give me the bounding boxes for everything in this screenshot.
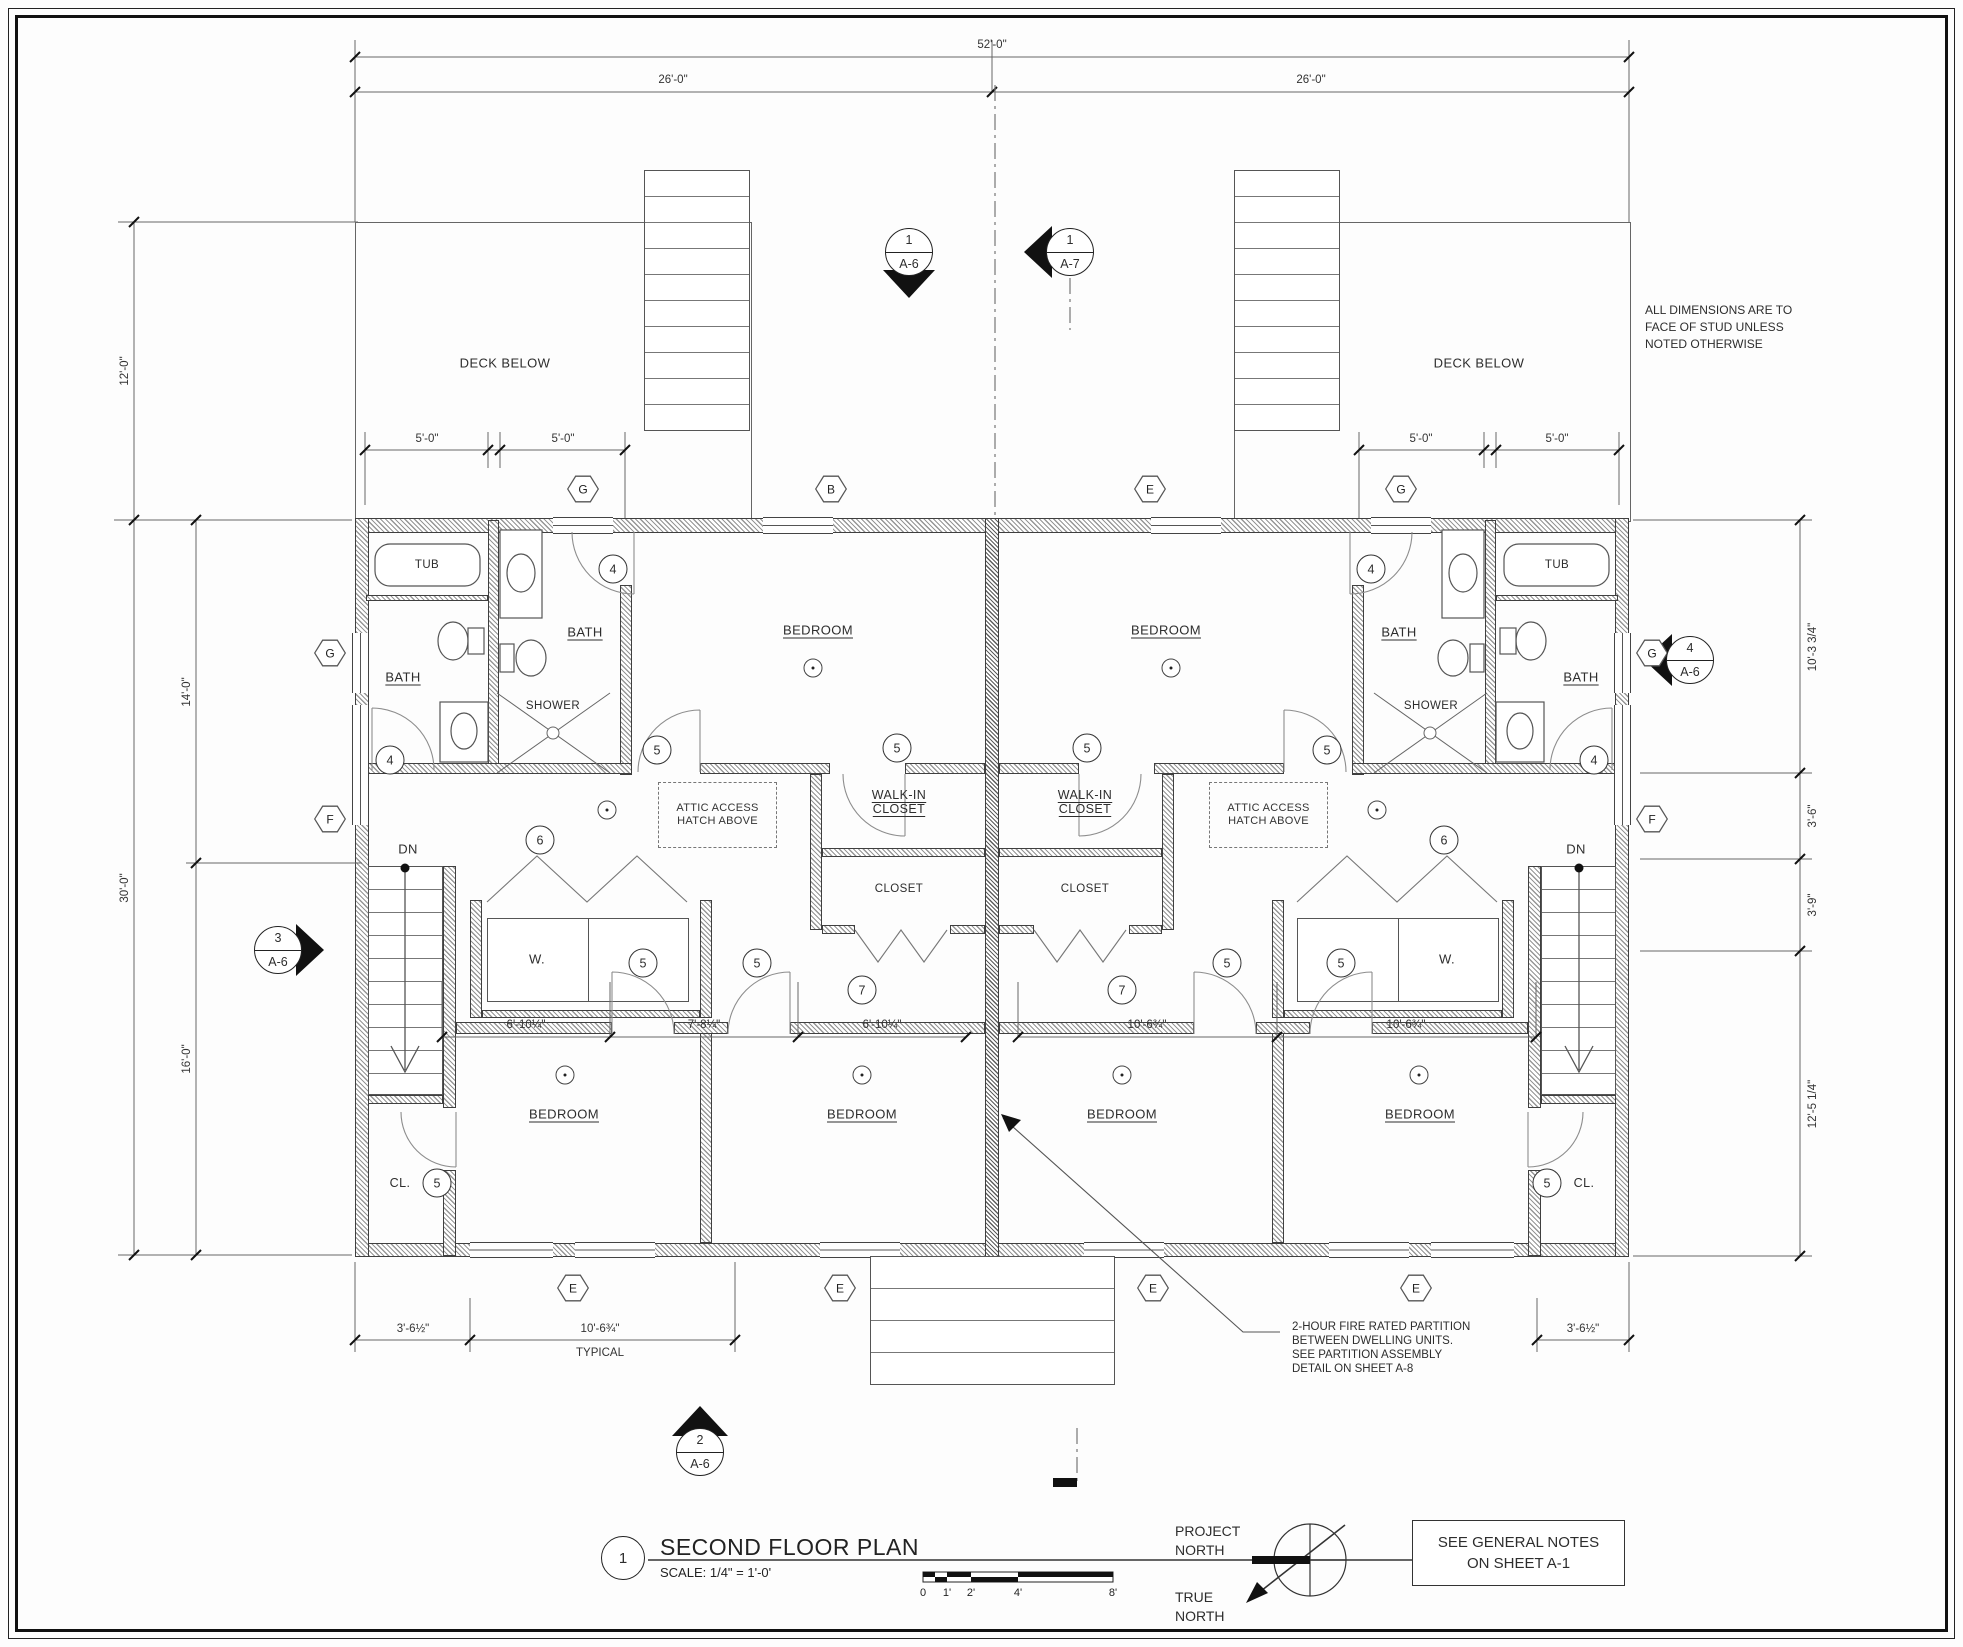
hex-label: G <box>578 482 587 496</box>
scalebar-tick-label: 2' <box>967 1587 975 1599</box>
room-label-walk-in-closet: WALK-IN CLOSET <box>872 788 926 816</box>
ceiling-light-icon <box>1113 1066 1132 1085</box>
wall-tub-alcove <box>1496 595 1618 601</box>
wall-laundry <box>1502 900 1514 1018</box>
dim-label: 10'-6¾" <box>1387 1019 1426 1031</box>
deck-stair-right <box>1234 170 1340 431</box>
room-label-bath: BATH <box>1563 670 1598 685</box>
wall-tub-alcove <box>366 595 488 601</box>
project-north-label: PROJECT NORTH <box>1175 1522 1240 1560</box>
room-label-shower: SHOWER <box>526 700 580 712</box>
drawing-number: 1 <box>602 1537 644 1579</box>
ceiling-light-icon <box>804 659 823 678</box>
ceiling-light-icon <box>853 1066 872 1085</box>
ceiling-light-icon <box>1368 801 1387 820</box>
dim-label: 12'-5 1/4" <box>1807 1080 1819 1128</box>
stair-dn-left <box>368 866 443 1095</box>
drawing-sheet: ATTIC ACCESS HATCH ABOVE ATTIC ACCESS HA… <box>0 0 1963 1647</box>
hex-label: E <box>1149 1281 1157 1295</box>
keynote: 4 <box>376 746 405 775</box>
keynote: 5 <box>423 1169 452 1198</box>
wall-stair-cl <box>368 1095 443 1104</box>
window <box>1151 517 1221 534</box>
section-sheet: A-6 <box>677 1452 723 1476</box>
attic-access-hatch: ATTIC ACCESS HATCH ABOVE <box>1209 782 1328 848</box>
section-sheet: A-6 <box>1667 660 1713 684</box>
window <box>470 1242 553 1258</box>
wall-hall <box>999 763 1079 774</box>
washer-label: W. <box>1439 952 1455 967</box>
wall-closet <box>999 925 1034 934</box>
wall-wic <box>1162 774 1174 930</box>
section-sheet: A-6 <box>255 950 301 974</box>
room-label-walk-in-closet: WALK-IN CLOSET <box>1058 788 1112 816</box>
dim-label: 3'-6½" <box>397 1323 430 1335</box>
section-number: 3 <box>255 927 301 950</box>
window <box>1371 517 1431 534</box>
ceiling-light-icon <box>1410 1066 1429 1085</box>
room-label-bedroom: BEDROOM <box>1131 623 1201 638</box>
room-label-shower: SHOWER <box>1404 700 1458 712</box>
dim-label: 10'-3 3/4" <box>1807 623 1819 671</box>
section-marker-2-a6: 2 A-6 <box>676 1428 724 1476</box>
dim-label: 5'-0" <box>416 433 439 445</box>
wall-party-fire-rated <box>985 518 999 1257</box>
dim-label: 5'-0" <box>552 433 575 445</box>
room-label-bedroom: BEDROOM <box>1087 1107 1157 1122</box>
attic-access-hatch: ATTIC ACCESS HATCH ABOVE <box>658 782 777 848</box>
wall-laundry <box>1272 900 1284 1018</box>
section-marker-1-a7: 1 A-7 <box>1046 228 1094 276</box>
hex-label: E <box>836 1281 844 1295</box>
dim-label: 3'-6" <box>1807 805 1819 828</box>
window <box>575 1242 655 1258</box>
window <box>1614 633 1631 693</box>
scalebar-tick-label: 1' <box>943 1587 951 1599</box>
dim-label: 26'-0" <box>1296 74 1325 86</box>
keynote: 5 <box>643 736 672 765</box>
dim-label: 7'-8¼" <box>688 1019 721 1031</box>
wall-stair <box>443 866 456 1108</box>
dim-label: 30'-0" <box>119 873 131 902</box>
fixture-label-tub: TUB <box>1545 559 1569 571</box>
drawing-title: SECOND FLOOR PLAN <box>660 1534 919 1561</box>
keynote: 5 <box>1213 949 1242 978</box>
wall-laundry <box>1284 1010 1502 1018</box>
dim-label: 5'-0" <box>1546 433 1569 445</box>
keynote: 5 <box>629 949 658 978</box>
keynote: 5 <box>1313 736 1342 765</box>
window <box>1431 1242 1514 1258</box>
window <box>553 517 613 534</box>
wall-laundry <box>470 900 482 1018</box>
dim-label: 10'-6¾" <box>1128 1019 1167 1031</box>
window <box>1614 705 1631 825</box>
dim-label: 3'-6½" <box>1567 1323 1600 1335</box>
drawing-scale: SCALE: 1/4" = 1'-0' <box>660 1565 771 1580</box>
fixture-label-tub: TUB <box>415 559 439 571</box>
stair-dn-label: DN <box>1566 842 1586 857</box>
wall-bedroom-divide <box>1272 1022 1284 1243</box>
room-label-bedroom: BEDROOM <box>783 623 853 638</box>
keynote: 4 <box>599 555 628 584</box>
wall-wic-closet <box>999 848 1162 857</box>
window <box>1329 1242 1409 1258</box>
keynote: 7 <box>1108 976 1137 1005</box>
wall-wic-closet <box>822 848 985 857</box>
room-label-closet: CLOSET <box>1061 883 1109 895</box>
hex-label: G <box>1647 646 1656 660</box>
hex-label: F <box>326 812 333 826</box>
hex-label: E <box>569 1281 577 1295</box>
scalebar-tick-label: 8' <box>1109 1587 1117 1599</box>
washer-dryer-unit <box>487 918 689 1002</box>
scalebar-tick-label: 0 <box>920 1587 926 1599</box>
wall-bath-divide <box>488 520 499 770</box>
dim-label: TYPICAL <box>576 1347 624 1359</box>
keynote: 4 <box>1357 555 1386 584</box>
wall-bath-bedroom <box>1352 585 1364 775</box>
wall-wic <box>810 774 822 930</box>
dim-label: 10'-6¾" <box>581 1323 620 1335</box>
wall-laundry <box>482 1010 700 1018</box>
wall-laundry <box>700 900 712 1018</box>
fire-partition-note: 2-HOUR FIRE RATED PARTITION BETWEEN DWEL… <box>1292 1320 1470 1376</box>
keynote: 5 <box>883 734 912 763</box>
dim-label: 14'-0" <box>181 677 193 706</box>
room-label-bath: BATH <box>567 625 602 640</box>
general-notes-box: SEE GENERAL NOTES ON SHEET A-1 <box>1412 1520 1625 1586</box>
room-label-deck: DECK BELOW <box>460 356 551 371</box>
room-label-cl: CL. <box>1574 1176 1595 1190</box>
room-label-bedroom: BEDROOM <box>827 1107 897 1122</box>
ceiling-light-icon <box>556 1066 575 1085</box>
wall-bath-bedroom <box>620 585 632 775</box>
stair-dn-right <box>1541 866 1616 1095</box>
window <box>352 705 369 825</box>
section-number: 1 <box>1047 229 1093 252</box>
hex-label: F <box>1648 812 1655 826</box>
washer-label: W. <box>529 952 545 967</box>
wall-bedroom-divide <box>700 1022 712 1243</box>
section-marker-4-a6: 4 A-6 <box>1666 636 1714 684</box>
wall-hall <box>700 763 830 774</box>
wall-bedroom-top <box>1256 1022 1310 1034</box>
window <box>352 633 369 693</box>
hex-label: B <box>827 482 835 496</box>
keynote: 5 <box>1327 949 1356 978</box>
wall-exterior-right <box>1615 518 1629 1257</box>
keynote: 6 <box>1430 826 1459 855</box>
wall-closet <box>822 925 855 934</box>
hex-label: E <box>1412 1281 1420 1295</box>
dim-label: 52'-0" <box>977 39 1006 51</box>
dim-label: 6'-10¼" <box>863 1019 902 1031</box>
scalebar-tick-label: 4' <box>1014 1587 1022 1599</box>
dim-label: 6'-10¼" <box>507 1019 546 1031</box>
wall-stair-cl <box>1541 1095 1616 1104</box>
section-sheet: A-7 <box>1047 252 1093 276</box>
room-label-bedroom: BEDROOM <box>529 1107 599 1122</box>
room-label-cl: CL. <box>390 1176 411 1190</box>
deck-stair-left <box>644 170 750 431</box>
wall-closet <box>950 925 985 934</box>
keynote: 5 <box>743 949 772 978</box>
dim-label: 5'-0" <box>1410 433 1433 445</box>
hex-label: E <box>1146 482 1154 496</box>
room-label-bedroom: BEDROOM <box>1385 1107 1455 1122</box>
dim-label: 3'-9" <box>1807 894 1819 917</box>
stud-dimension-note: ALL DIMENSIONS ARE TO FACE OF STUD UNLES… <box>1645 302 1792 353</box>
room-label-deck: DECK BELOW <box>1434 356 1525 371</box>
keynote: 4 <box>1580 746 1609 775</box>
keynote: 5 <box>1533 1169 1562 1198</box>
dim-label: 26'-0" <box>658 74 687 86</box>
room-label-bath: BATH <box>1381 625 1416 640</box>
stair-dn-label: DN <box>398 842 418 857</box>
room-label-closet: CLOSET <box>875 883 923 895</box>
wall-hall <box>905 763 985 774</box>
section-number: 4 <box>1667 637 1713 660</box>
ceiling-light-icon <box>1162 659 1181 678</box>
hex-label: G <box>325 646 334 660</box>
keynote: 5 <box>1073 734 1102 763</box>
section-number: 1 <box>886 229 932 252</box>
stair-exterior-center <box>870 1256 1115 1385</box>
section-number: 2 <box>677 1429 723 1452</box>
wall-stair <box>1528 866 1541 1108</box>
drawing-number-bubble: 1 <box>601 1536 645 1580</box>
keynote: 7 <box>848 976 877 1005</box>
room-label-bath: BATH <box>385 670 420 685</box>
wall-bath-divide <box>1485 520 1496 770</box>
ceiling-light-icon <box>598 801 617 820</box>
dim-label: 12'-0" <box>119 356 131 385</box>
section-marker-3-a6: 3 A-6 <box>254 926 302 974</box>
section-marker-1-a6: 1 A-6 <box>885 228 933 276</box>
wall-hall <box>1154 763 1284 774</box>
dim-label: 16'-0" <box>181 1044 193 1073</box>
true-north-label: TRUE NORTH <box>1175 1588 1225 1626</box>
hex-label: G <box>1396 482 1405 496</box>
keynote: 6 <box>526 826 555 855</box>
wall-exterior-left <box>355 518 369 1257</box>
window <box>763 517 833 534</box>
section-sheet: A-6 <box>886 252 932 276</box>
wall-closet <box>1129 925 1162 934</box>
